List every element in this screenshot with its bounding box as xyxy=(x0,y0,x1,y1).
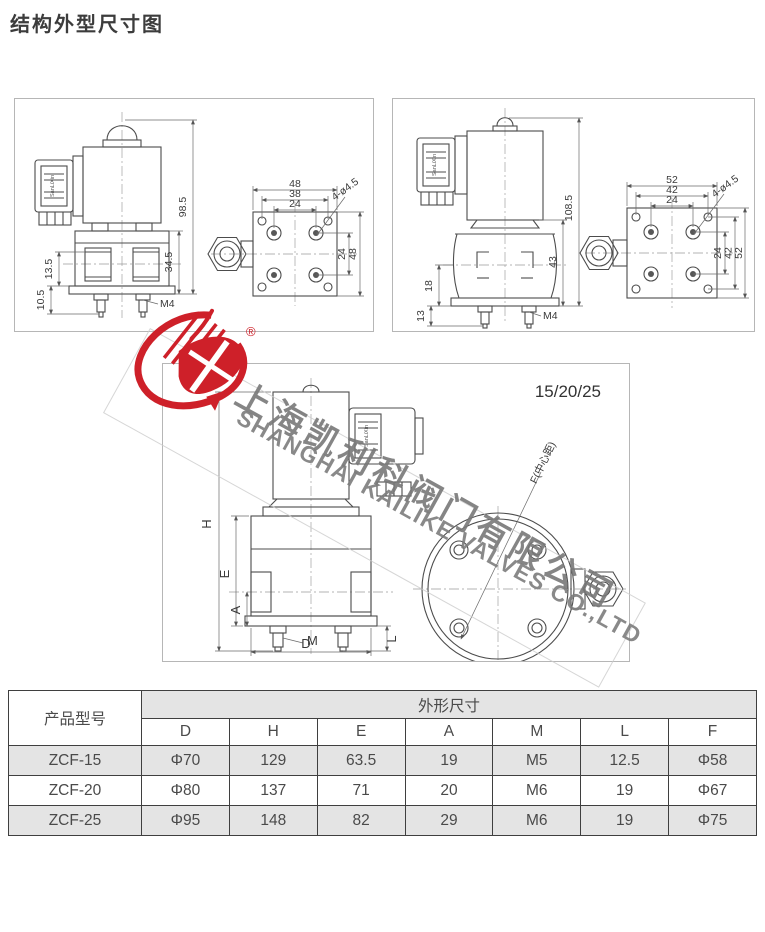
drawing-panel-large: 108.5 43 18 13 M4 52 42 24 24 42 52 4-ø4… xyxy=(392,98,755,332)
col-header-l: L xyxy=(581,719,669,746)
centerlines xyxy=(63,112,357,318)
drawing-panel-small: 98.5 34.5 13.5 10.5 M4 48 38 24 24 48 4-… xyxy=(14,98,374,332)
value-cell: 29 xyxy=(405,806,493,836)
valve-drawing-small: 98.5 34.5 13.5 10.5 M4 48 38 24 24 48 4-… xyxy=(15,99,373,331)
table-row-zcf-15: ZCF-15 Φ70 129 63.5 19 M5 12.5 Φ58 xyxy=(9,746,757,776)
valve-side-view xyxy=(35,126,175,317)
dim-body-height: 34.5 xyxy=(163,252,175,273)
value-cell: Φ67 xyxy=(669,776,757,806)
dim-thread: M4 xyxy=(543,310,558,322)
dim-m-label: M xyxy=(307,633,318,648)
value-cell: M6 xyxy=(493,806,581,836)
dim-plate-h-outer: 52 xyxy=(733,247,745,259)
valve-drawing-large: 108.5 43 18 13 M4 52 42 24 24 42 52 4-ø4… xyxy=(393,99,754,331)
valve-side-view xyxy=(417,118,559,328)
model-cell: ZCF-25 xyxy=(9,806,142,836)
value-cell: 63.5 xyxy=(317,746,405,776)
value-cell: Φ75 xyxy=(669,806,757,836)
holes-label: 4-ø4.5 xyxy=(329,176,361,204)
model-size-label: 15/20/25 xyxy=(535,382,601,401)
col-header-e: E xyxy=(317,719,405,746)
table-group-header-row: 产品型号 外形尺寸 xyxy=(9,691,757,719)
value-cell: 12.5 xyxy=(581,746,669,776)
value-cell: Φ95 xyxy=(142,806,230,836)
kailike-logo-icon: ® xyxy=(126,308,260,428)
holes-label: 4-ø4.5 xyxy=(709,173,741,201)
page-title: 结构外型尺寸图 xyxy=(10,8,164,37)
dim-left-upper: 13.5 xyxy=(43,259,55,280)
value-cell: 19 xyxy=(581,776,669,806)
table-row-zcf-25: ZCF-25 Φ95 148 82 29 M6 19 Φ75 xyxy=(9,806,757,836)
coil-brand-label: SanLiXin xyxy=(50,175,56,197)
centerlines xyxy=(443,108,733,324)
value-cell: 19 xyxy=(405,746,493,776)
dim-l-label: L xyxy=(384,635,399,642)
dim-left-upper: 18 xyxy=(423,280,435,292)
value-cell: Φ80 xyxy=(142,776,230,806)
dimension-table: 产品型号 外形尺寸 D H E A M L F ZCF-15 Φ70 129 6… xyxy=(8,690,757,836)
col-header-h: H xyxy=(229,719,317,746)
model-cell: ZCF-20 xyxy=(9,776,142,806)
dim-left-lower: 10.5 xyxy=(35,290,47,311)
col-header-m: M xyxy=(493,719,581,746)
col-header-f: F xyxy=(669,719,757,746)
col-header-a: A xyxy=(405,719,493,746)
registered-mark: ® xyxy=(246,324,256,339)
value-cell: 137 xyxy=(229,776,317,806)
value-cell: 19 xyxy=(581,806,669,836)
dim-plate-w-inner: 24 xyxy=(666,194,678,206)
dim-plate-h-outer: 48 xyxy=(347,248,359,260)
dim-a-label: A xyxy=(228,605,243,614)
dim-f-label: F(中心距) xyxy=(527,439,558,485)
table-header-group: 外形尺寸 xyxy=(142,691,757,719)
value-cell: 20 xyxy=(405,776,493,806)
value-cell: Φ70 xyxy=(142,746,230,776)
dim-h-label: H xyxy=(199,519,214,528)
table-row-zcf-20: ZCF-20 Φ80 137 71 20 M6 19 Φ67 xyxy=(9,776,757,806)
value-cell: Φ58 xyxy=(669,746,757,776)
coil-brand-label: SanLiXin xyxy=(432,154,438,176)
value-cell: 82 xyxy=(317,806,405,836)
dim-left-lower: 13 xyxy=(415,310,427,322)
value-cell: M6 xyxy=(493,776,581,806)
value-cell: 148 xyxy=(229,806,317,836)
model-cell: ZCF-15 xyxy=(9,746,142,776)
dim-e-label: E xyxy=(217,569,232,578)
dimension-lines xyxy=(47,120,364,314)
value-cell: 71 xyxy=(317,776,405,806)
table-header-model: 产品型号 xyxy=(9,691,142,746)
dim-total-height: 108.5 xyxy=(563,195,575,221)
dim-body-height: 43 xyxy=(547,256,559,268)
value-cell: 129 xyxy=(229,746,317,776)
company-logo: ® xyxy=(126,308,260,428)
value-cell: M5 xyxy=(493,746,581,776)
dim-plate-w-inner: 24 xyxy=(289,198,301,210)
dim-total-height: 98.5 xyxy=(177,197,189,218)
page: 结构外型尺寸图 xyxy=(0,0,765,932)
col-header-d: D xyxy=(142,719,230,746)
